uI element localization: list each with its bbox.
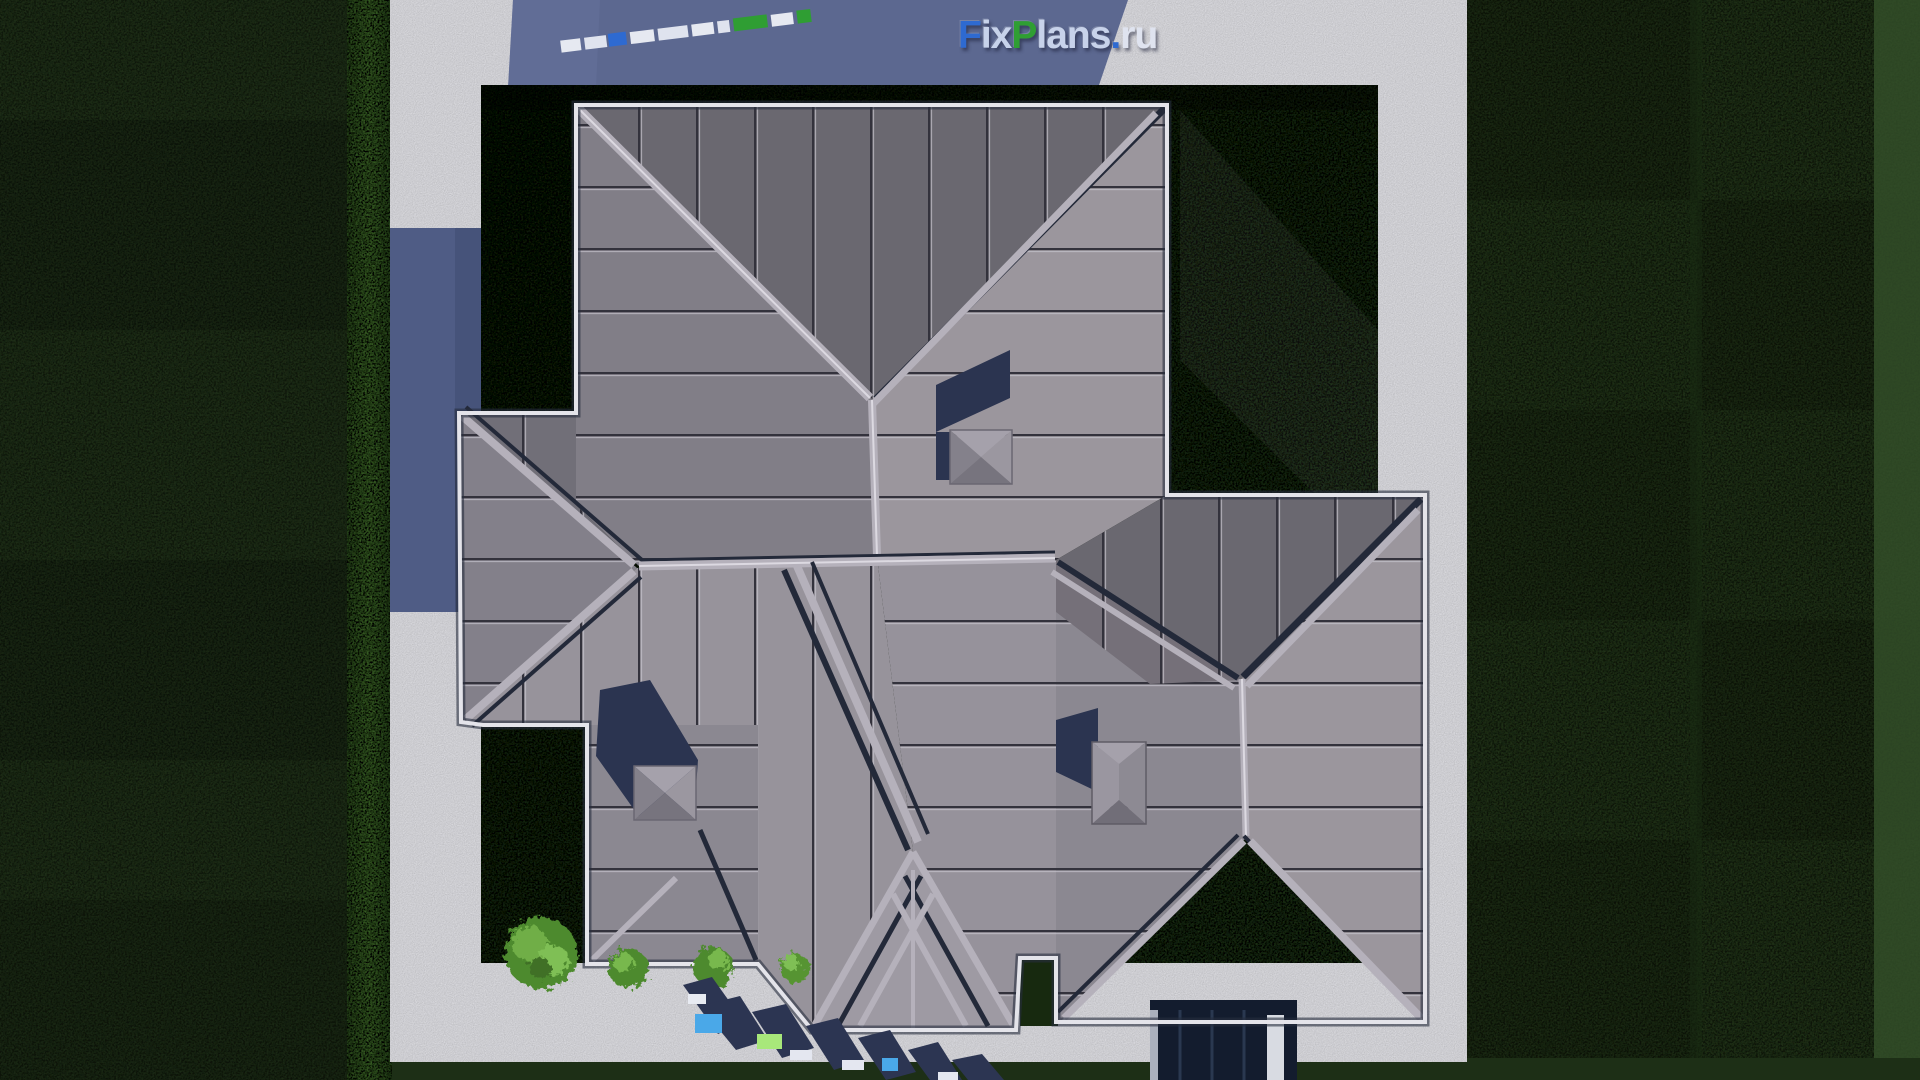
chimney-right-cap <box>1092 742 1146 824</box>
logo-p: P <box>1011 14 1036 57</box>
logo-ix: ix <box>981 14 1012 57</box>
letter-top-blue-2 <box>882 1058 898 1071</box>
logo-ru: ru <box>1120 14 1157 57</box>
fixplans-watermark: FixPlans.ru <box>958 14 1157 58</box>
mowed-edge-strip <box>347 0 392 1080</box>
chimney-left-cap <box>634 766 696 820</box>
logo-dot: . <box>1110 14 1120 57</box>
letter-top-blue <box>695 1014 722 1033</box>
bush-large <box>505 917 577 989</box>
bush-small-1 <box>608 948 648 988</box>
logo-lans: lans <box>1036 14 1110 57</box>
site-plan-render: FixPlans.ru <box>0 0 1920 1080</box>
aerial-roof-plan <box>0 0 1920 1080</box>
bush-small-3 <box>780 953 810 983</box>
chimney-main-cap <box>950 430 1012 484</box>
letter-top-green <box>757 1034 782 1049</box>
logo-f: F <box>958 14 981 57</box>
garage-area <box>1150 1000 1297 1080</box>
